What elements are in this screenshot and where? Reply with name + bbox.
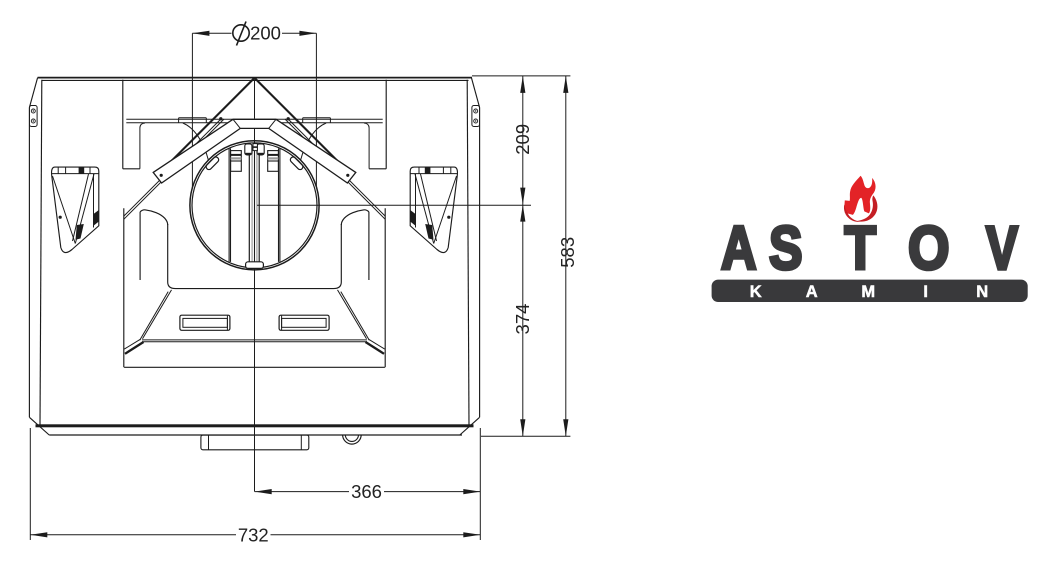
svg-text:K: K [750, 283, 762, 301]
svg-text:374: 374 [512, 304, 533, 335]
svg-text:N: N [976, 283, 988, 301]
svg-text:O: O [908, 214, 950, 282]
svg-text:V: V [986, 214, 1018, 282]
svg-text:200: 200 [250, 23, 281, 44]
svg-text:583: 583 [557, 237, 578, 268]
svg-text:209: 209 [512, 124, 533, 155]
svg-text:T: T [845, 214, 877, 282]
svg-text:A: A [806, 283, 818, 301]
svg-text:366: 366 [351, 481, 382, 502]
svg-text:M: M [861, 283, 875, 301]
svg-text:A: A [721, 214, 757, 282]
svg-text:I: I [923, 283, 928, 301]
svg-text:732: 732 [238, 524, 269, 545]
svg-text:S: S [769, 214, 803, 282]
